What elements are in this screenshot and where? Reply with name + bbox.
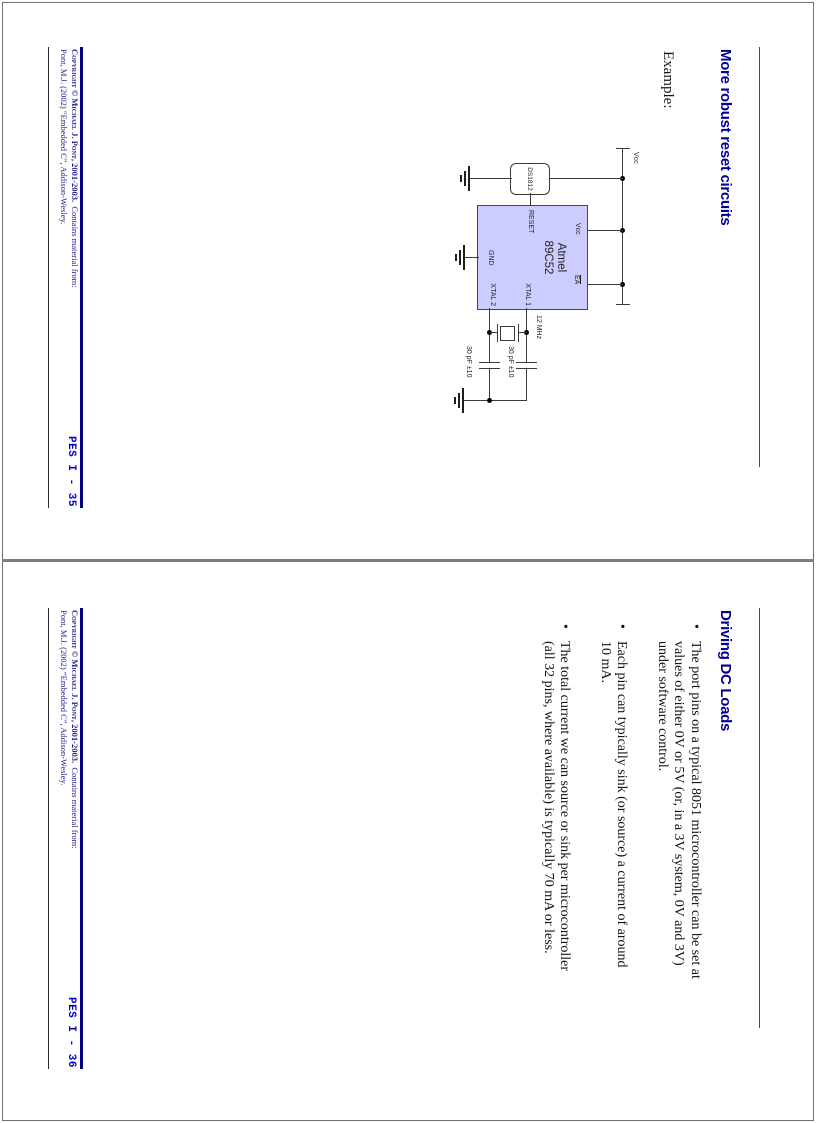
mcu-pin-xtal1: XTAL 1: [524, 283, 531, 306]
crystal-stub-bottom: [490, 332, 497, 333]
vcc-rail-right-tick: [616, 304, 630, 305]
ground-symbol-bar: [458, 393, 460, 408]
contains-note: Contains material from:: [70, 767, 80, 848]
wire-gnd-pin: [465, 257, 479, 258]
ground-symbol-bar: [464, 171, 466, 186]
bullet-line: The port pins on a typical 8051 microcon…: [687, 641, 704, 979]
page-number: PES I - 36: [65, 997, 77, 1068]
bullet-line: The total current we can source or sink …: [556, 641, 573, 979]
ds1812-label: DS1812: [527, 167, 534, 191]
slide-title: Driving DC Loads: [717, 610, 734, 731]
capacitor1-value: 30 pF ±10: [507, 346, 514, 377]
bullet-line: under software control.: [654, 641, 671, 979]
footer-copyright-line1: Copyright © Michael J. Pont, 2001-2003. …: [70, 49, 80, 288]
wire-xtal2-b: [489, 369, 490, 400]
wire-ds1812-to-ground: [470, 178, 512, 179]
ground-symbol-bar: [460, 175, 462, 182]
crystal-frequency-label: 12 MHz: [535, 315, 542, 339]
example-label: Example:: [659, 51, 676, 108]
bullet-line: 10 mA.: [597, 641, 614, 979]
ground-symbol-bar: [459, 250, 461, 265]
ground-symbol-bar: [454, 397, 456, 404]
wire-ground-bus: [464, 400, 527, 401]
junction-dot: [487, 398, 492, 403]
footer-navy-rule: [80, 608, 83, 1069]
ground-symbol-bar: [455, 254, 457, 261]
page-number: PES I - 35: [65, 436, 77, 507]
bullet-line: Each pin can typically sink (or source) …: [613, 641, 630, 979]
slide-pes-i-35: More robust reset circuits Example: Vcc …: [48, 47, 760, 508]
mcu-pin-reset: RESET: [527, 210, 534, 233]
mcu-pin-gnd: GND: [487, 250, 494, 266]
mcu-name-line2: 89C52: [542, 206, 554, 309]
copyright-text: Copyright © Michael J. Pont, 2001-2003.: [70, 49, 80, 202]
mcu-pin-ea: EA: [573, 275, 581, 284]
mcu-pin-vcc: Vcc: [574, 223, 581, 235]
wire-vcc-to-ds1812: [550, 178, 623, 179]
slide-title: More robust reset circuits: [717, 49, 734, 225]
mcu-name-line1: Atmel: [555, 206, 567, 309]
crystal-plate-bottom: [497, 324, 498, 342]
footer-copyright-line1: Copyright © Michael J. Pont, 2001-2003. …: [70, 610, 80, 849]
mcu-pin-xtal2: XTAL 2: [489, 283, 496, 306]
footer-copyright-line2: Pont, M.J. (2002) “Embedded C”, Addison-…: [59, 610, 69, 785]
capacitor1-plate: [516, 368, 537, 369]
slide-bottom-rule: [48, 608, 49, 1069]
slide-frames-divider: [2, 559, 814, 562]
capacitor1-plate: [516, 362, 537, 363]
bullet-item: Each pin can typically sink (or source) …: [597, 624, 630, 979]
ground-symbol-bar: [463, 245, 465, 270]
wire-vcc-pin: [588, 230, 623, 231]
crystal-plate-top: [518, 324, 519, 342]
wire-xtal2-a: [489, 308, 490, 362]
capacitor2-plate: [479, 368, 500, 369]
bullet-list: The port pins on a typical 8051 microcon…: [516, 624, 704, 979]
wire-xtal1-a: [526, 308, 527, 362]
crystal-stub-top: [519, 332, 527, 333]
slide-pes-i-36: Driving DC Loads The port pins on a typi…: [48, 608, 760, 1069]
ground-symbol-bar: [468, 166, 470, 191]
bullet-item: The port pins on a typical 8051 microcon…: [654, 624, 704, 979]
contains-note: Contains material from:: [70, 206, 80, 287]
capacitor2-plate: [479, 362, 500, 363]
mcu-89c52-box: Vcc EA Atmel 89C52 RESET XTAL 1 XTAL 2 G…: [477, 205, 588, 310]
slide-top-rule: [759, 608, 760, 1028]
bullet-line: values of either 0V or 5V (or, in a 3V s…: [670, 641, 687, 979]
ground-symbol-bar: [462, 388, 464, 413]
footer-copyright-line2: Pont, M.J. (2002) “Embedded C”, Addison-…: [59, 49, 69, 224]
slide-bottom-rule: [48, 47, 49, 508]
vcc-net-label: Vcc: [632, 152, 639, 164]
footer-navy-rule: [80, 47, 83, 508]
bullet-line: (all 32 pins, where available) is typica…: [540, 641, 557, 979]
wire-ea-pin: [588, 284, 623, 285]
copyright-text: Copyright © Michael J. Pont, 2001-2003.: [70, 610, 80, 763]
wire-ds1812-to-reset-pin: [530, 193, 531, 205]
crystal-body: [500, 326, 515, 341]
wire-xtal1-b: [526, 369, 527, 400]
capacitor2-value: 30 pF ±10: [465, 346, 472, 377]
ds1812-chip: DS1812: [510, 163, 550, 195]
vcc-rail-left-tick: [616, 148, 630, 149]
handout-page: More robust reset circuits Example: Vcc …: [0, 0, 816, 1123]
slide-top-rule: [759, 47, 760, 467]
bullet-item: The total current we can source or sink …: [540, 624, 573, 979]
